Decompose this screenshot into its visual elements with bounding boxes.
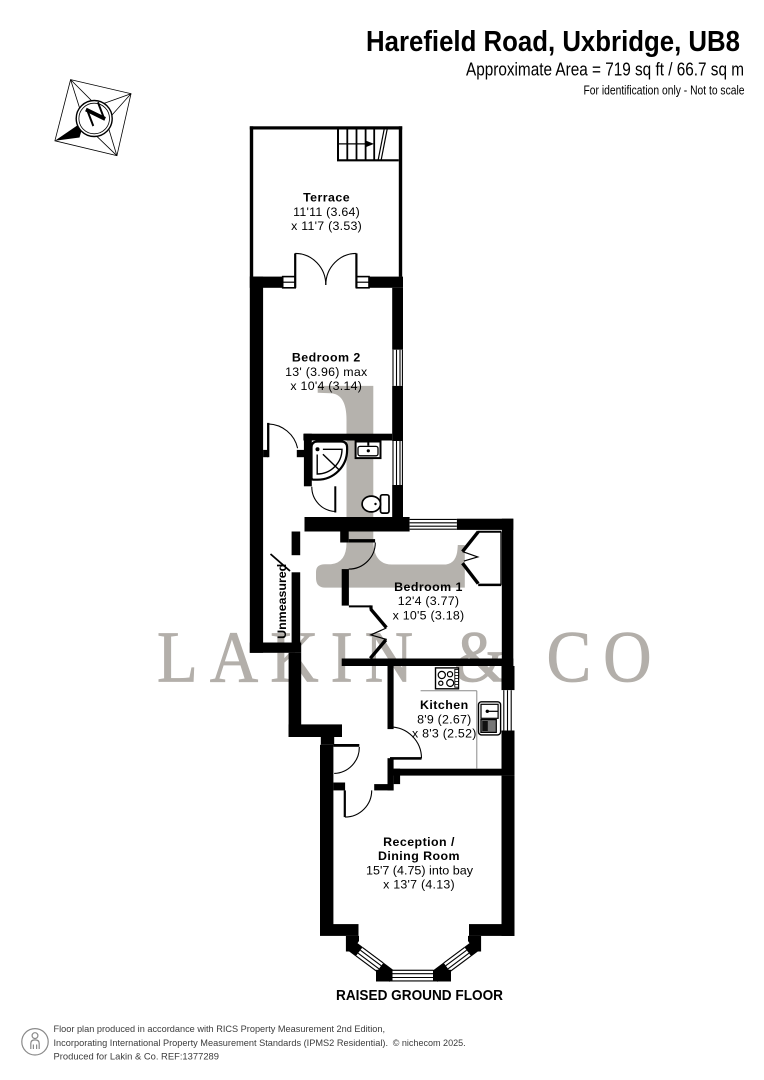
svg-text:15'7 (4.75) into bay: 15'7 (4.75) into bay: [366, 863, 474, 877]
svg-text:Harefield Road, Uxbridge, UB8: Harefield Road, Uxbridge, UB8: [366, 26, 740, 58]
svg-text:RAISED GROUND FLOOR: RAISED GROUND FLOOR: [336, 988, 503, 1004]
svg-text:Bedroom 2: Bedroom 2: [292, 351, 361, 365]
svg-text:x 8'3 (2.52): x 8'3 (2.52): [412, 727, 477, 741]
svg-text:11'11 (3.64): 11'11 (3.64): [293, 205, 360, 219]
svg-text:Incorporating International Pr: Incorporating International Property Mea…: [54, 1038, 389, 1049]
svg-text:Floor plan produced in accorda: Floor plan produced in accordance with R…: [54, 1024, 386, 1035]
svg-text:Unmeasured: Unmeasured: [275, 564, 289, 639]
svg-text:12'4 (3.77): 12'4 (3.77): [398, 594, 460, 608]
svg-text:Terrace: Terrace: [303, 191, 350, 205]
svg-text:Produced for Lakin & Co. REF: Produced for Lakin & Co. REF:1377289: [54, 1052, 220, 1063]
svg-text:13' (3.96) max: 13' (3.96) max: [285, 365, 368, 379]
svg-text:8'9 (2.67): 8'9 (2.67): [417, 712, 471, 726]
svg-text:x 11'7 (3.53): x 11'7 (3.53): [291, 219, 362, 233]
svg-text:For identification only - Not: For identification only - Not to scale: [584, 84, 745, 98]
svg-text:x 13'7 (4.13): x 13'7 (4.13): [383, 878, 455, 892]
svg-text:Kitchen: Kitchen: [420, 698, 469, 712]
svg-text:Reception /: Reception /: [383, 835, 455, 849]
svg-text:Bedroom 1: Bedroom 1: [394, 580, 463, 594]
svg-text:Dining Room: Dining Room: [378, 849, 460, 863]
svg-text:x 10'5 (3.18): x 10'5 (3.18): [393, 608, 465, 622]
svg-text:x 10'4 (3.14): x 10'4 (3.14): [290, 379, 362, 393]
svg-text:LAKIN & CO: LAKIN & CO: [157, 617, 664, 698]
svg-text:© nichecom 2025.: © nichecom 2025.: [393, 1038, 466, 1049]
svg-text:Approximate Area = 719 sq ft /: Approximate Area = 719 sq ft / 66.7 sq m: [466, 59, 744, 80]
